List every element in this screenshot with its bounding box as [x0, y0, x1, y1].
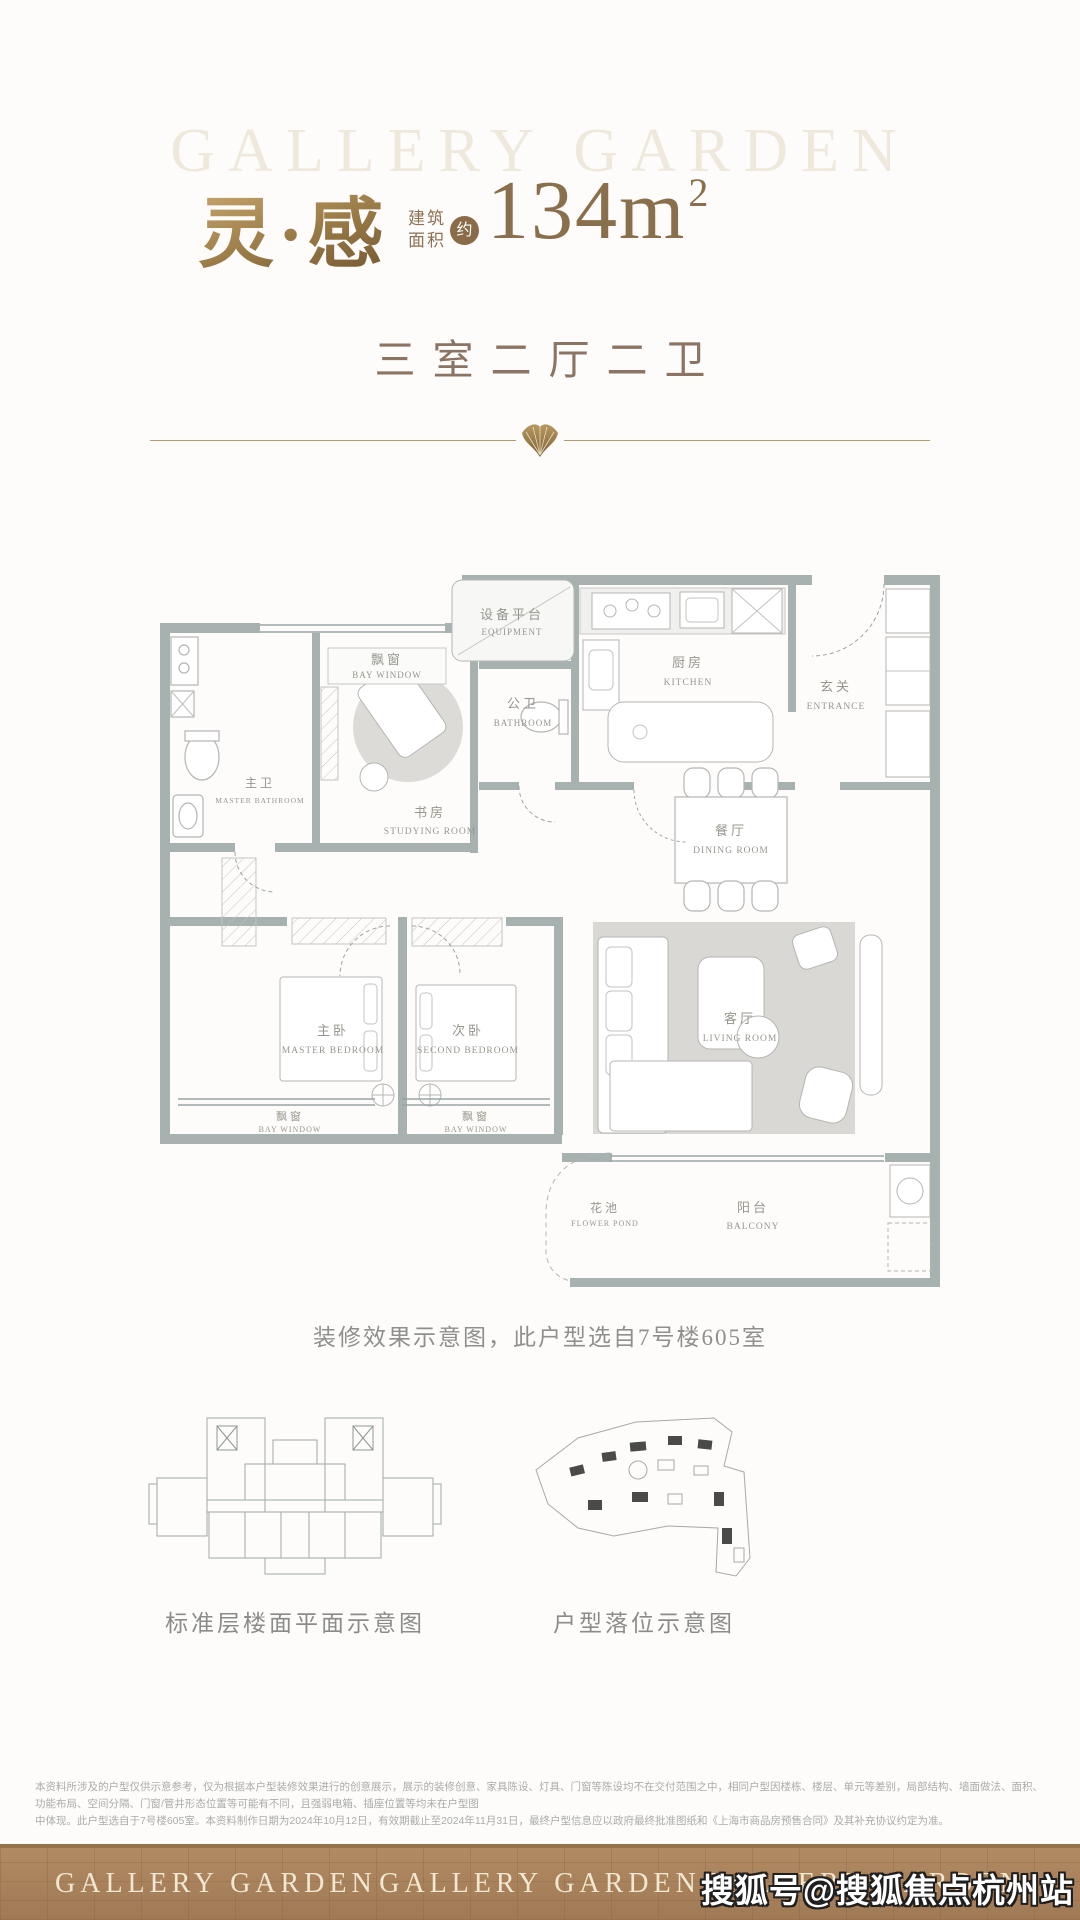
balcony-fixtures	[546, 1153, 932, 1282]
room-label-second-bed-cn: 次卧	[452, 1023, 484, 1038]
sohu-watermark: 搜狐号@搜狐焦点杭州站	[701, 1864, 1074, 1912]
room-label-balcony-en: BALCONY	[727, 1222, 780, 1232]
layout-subtitle: 三室二厅二卫	[0, 326, 1080, 386]
room-label-kitchen-cn: 厨房	[672, 655, 704, 670]
room-label-master-bath-cn: 主卫	[245, 776, 275, 790]
plan-caption: 装修效果示意图，此户型选自7号楼605室	[0, 1318, 1080, 1352]
room-label-flower-pond-cn: 花池	[590, 1200, 620, 1215]
room-label-equipment-cn: 设备平台	[480, 607, 544, 622]
room-label-entrance-en: ENTRANCE	[807, 702, 866, 712]
dining-set	[675, 768, 787, 911]
room-label-bay-top-cn: 飘窗	[371, 652, 403, 667]
ginkgo-ornament-icon	[516, 416, 564, 462]
master-bathroom-fixtures	[171, 637, 219, 837]
floor-plan: 飘窗 BAY WINDOW 设备平台 EQUIPMENT 公卫 BATHROOM…	[140, 465, 940, 1320]
room-label-dining-en: DINING ROOM	[693, 846, 769, 856]
room-label-living-en: LIVING ROOM	[703, 1034, 778, 1044]
room-label-balcony-cn: 阳台	[737, 1200, 769, 1215]
room-label-bay-right-en: BAY WINDOW	[445, 1125, 508, 1134]
footer-brand-left: GALLERY GARDEN	[55, 1868, 377, 1900]
approx-badge: 约	[450, 216, 479, 245]
room-label-bay-top-en: BAY WINDOW	[352, 670, 421, 680]
room-label-public-bath-cn: 公卫	[507, 696, 539, 711]
area-value: 134m2	[487, 162, 710, 259]
disclaimer-line1: 本资料所涉及的户型仅供示意参考，仅为根据本户型装修效果进行的创意展示，展示的装修…	[35, 1779, 1047, 1813]
area-label-line2: 面积	[408, 230, 446, 252]
room-label-kitchen-en: KITCHEN	[664, 678, 713, 688]
room-label-flower-pond-en: FLOWER POND	[571, 1219, 639, 1228]
poster-page: GALLERY GARDEN 灵·感 建筑 面积 约 134m2 三室二厅二卫	[0, 0, 1080, 1920]
room-label-master-bath-en: MASTER BATHROOM	[215, 796, 304, 805]
room-label-equipment-en: EQUIPMENT	[482, 627, 543, 637]
room-label-living-cn: 客厅	[724, 1011, 756, 1026]
floor-plate-diagram	[145, 1400, 445, 1595]
kitchen-fixtures	[580, 588, 785, 762]
bay-window-top-structure	[260, 623, 445, 633]
unit-title: 灵·感	[198, 172, 387, 282]
area-label: 建筑 面积	[408, 208, 446, 252]
room-label-master-bed-en: MASTER BEDROOM	[282, 1046, 384, 1056]
room-label-public-bath-en: BATHROOM	[494, 718, 553, 728]
room-label-bay-left-en: BAY WINDOW	[259, 1125, 322, 1134]
floor-plate-diagram-label: 标准层楼面平面示意图	[145, 1604, 445, 1638]
area-superscript: 2	[688, 170, 710, 215]
area-number: 134m	[487, 164, 686, 257]
room-label-dining-cn: 餐厅	[715, 823, 747, 838]
room-label-master-bed-cn: 主卧	[317, 1023, 349, 1038]
footer-brand-center: GALLERY GARDEN	[379, 1868, 701, 1900]
room-label-second-bed-en: SECOND BEDROOM	[417, 1046, 519, 1056]
room-label-entrance-cn: 玄关	[820, 679, 852, 694]
room-label-study-en: STUDYING ROOM	[384, 827, 476, 837]
area-label-line1: 建筑	[408, 208, 446, 230]
bedroom-furniture	[178, 858, 550, 1106]
site-location-diagram-label: 户型落位示意图	[518, 1604, 770, 1638]
room-label-bay-left-cn: 飘窗	[276, 1109, 304, 1123]
room-label-study-cn: 书房	[414, 805, 446, 820]
disclaimer: 本资料所涉及的户型仅供示意参考，仅为根据本户型装修效果进行的创意展示，展示的装修…	[35, 1779, 1047, 1830]
site-location-diagram	[518, 1408, 770, 1598]
disclaimer-line2: 中体现。此户型选自于7号楼605室。本资料制作日期为2024年10月12日，有效…	[35, 1813, 1047, 1830]
room-label-bay-right-cn: 飘窗	[462, 1109, 490, 1123]
